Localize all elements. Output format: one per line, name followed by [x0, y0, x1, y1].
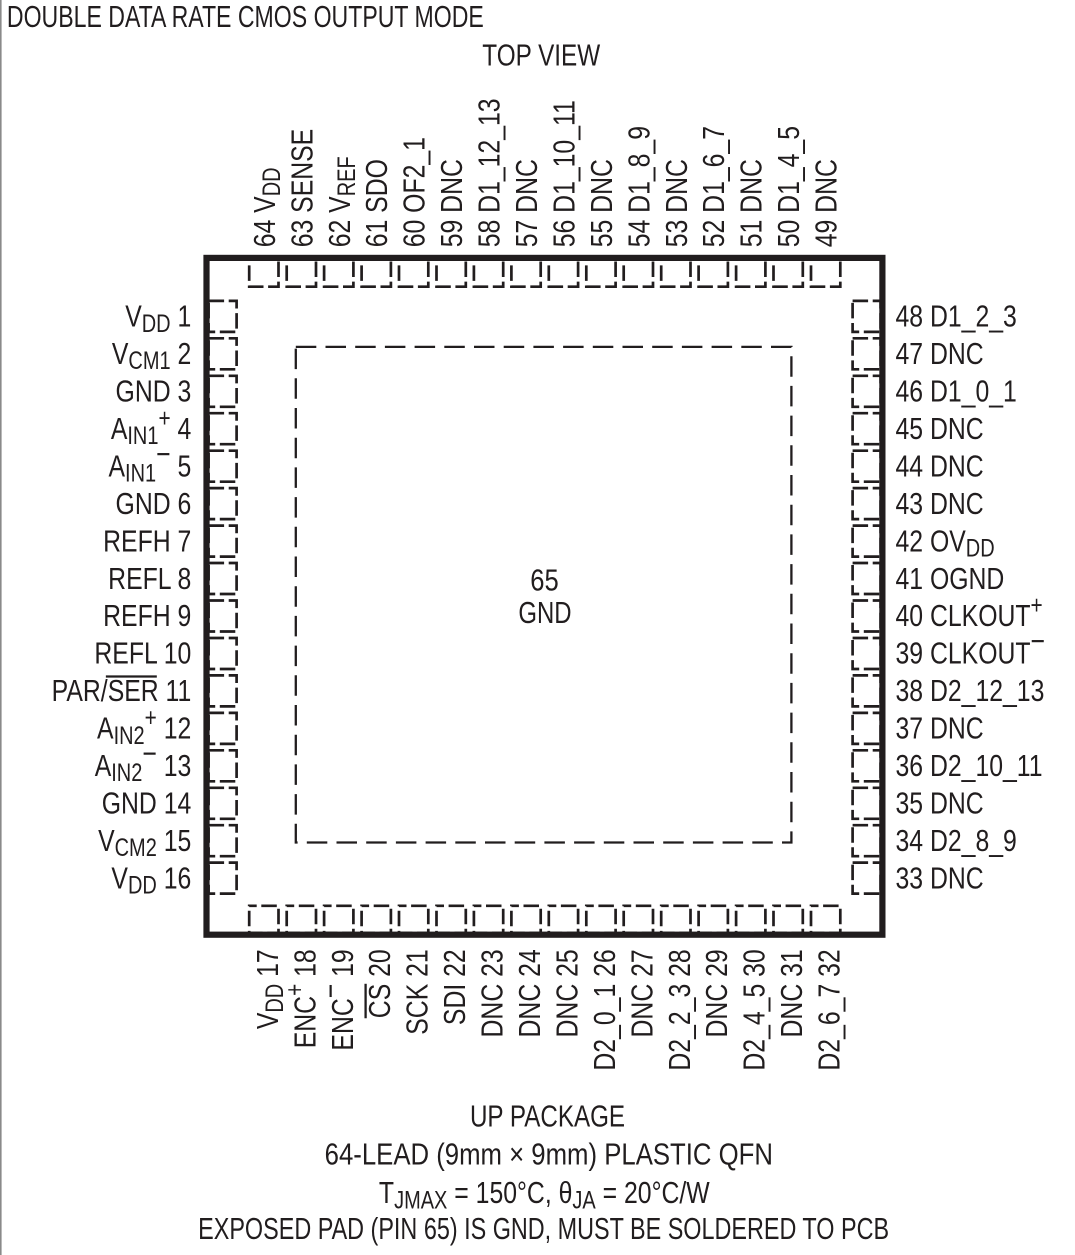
svg-text:PAR/SER 11: PAR/SER 11 [52, 673, 192, 707]
svg-text:SCK 21: SCK 21 [400, 949, 434, 1034]
svg-text:EXPOSED PAD (PIN 65) IS GND, M: EXPOSED PAD (PIN 65) IS GND, MUST BE SOL… [198, 1211, 889, 1246]
svg-text:57 DNC: 57 DNC [509, 159, 543, 247]
svg-text:GND 14: GND 14 [102, 786, 192, 820]
svg-text:63 SENSE: 63 SENSE [285, 129, 319, 248]
svg-text:D2_0_1 26: D2_0_1 26 [587, 949, 621, 1070]
svg-text:55 DNC: 55 DNC [584, 159, 618, 247]
svg-text:48 D1_2_3: 48 D1_2_3 [896, 299, 1017, 333]
svg-text:TOP VIEW: TOP VIEW [482, 38, 601, 73]
svg-text:51 DNC: 51 DNC [734, 159, 768, 247]
svg-text:60 OF2_1: 60 OF2_1 [397, 137, 431, 247]
svg-text:59 DNC: 59 DNC [434, 159, 468, 247]
svg-text:DNC 27: DNC 27 [625, 949, 659, 1037]
svg-text:33 DNC: 33 DNC [896, 861, 984, 895]
svg-text:54 D1_8_9: 54 D1_8_9 [622, 126, 656, 247]
svg-text:D2_4_5 30: D2_4_5 30 [737, 949, 771, 1070]
svg-text:GND 3: GND 3 [116, 374, 192, 408]
svg-text:DNC 25: DNC 25 [550, 949, 584, 1037]
svg-text:50 D1_4_5: 50 D1_4_5 [772, 126, 806, 247]
svg-text:52 D1_6_7: 52 D1_6_7 [697, 126, 731, 247]
svg-text:37 DNC: 37 DNC [896, 711, 984, 745]
svg-text:46 D1_0_1: 46 D1_0_1 [896, 374, 1017, 408]
svg-text:53 DNC: 53 DNC [659, 159, 693, 247]
svg-text:43 DNC: 43 DNC [896, 486, 984, 520]
svg-text:D2_2_3 28: D2_2_3 28 [662, 949, 696, 1070]
svg-text:DNC 23: DNC 23 [475, 949, 509, 1037]
svg-text:REFH 7: REFH 7 [103, 524, 191, 558]
svg-text:45 DNC: 45 DNC [896, 411, 984, 445]
svg-text:SDI 22: SDI 22 [437, 949, 471, 1025]
svg-text:58 D1_12_13: 58 D1_12_13 [472, 98, 506, 247]
svg-text:41 OGND: 41 OGND [896, 561, 1005, 595]
svg-text:36 D2_10_11: 36 D2_10_11 [896, 748, 1043, 782]
svg-text:DNC 29: DNC 29 [700, 949, 734, 1037]
svg-text:35 DNC: 35 DNC [896, 786, 984, 820]
svg-text:DNC 24: DNC 24 [512, 949, 546, 1037]
svg-text:64-LEAD (9mm × 9mm) PLASTIC QF: 64-LEAD (9mm × 9mm) PLASTIC QFN [325, 1137, 773, 1172]
svg-text:REFH 9: REFH 9 [103, 599, 191, 633]
svg-text:DOUBLE DATA RATE CMOS OUTPUT M: DOUBLE DATA RATE CMOS OUTPUT MODE [7, 0, 484, 34]
svg-text:56 D1_10_11: 56 D1_10_11 [547, 100, 581, 247]
svg-text:D2_6_7 32: D2_6_7 32 [812, 949, 846, 1070]
svg-text:DNC 31: DNC 31 [775, 949, 809, 1037]
svg-text:CS 20: CS 20 [363, 949, 397, 1018]
svg-text:38 D2_12_13: 38 D2_12_13 [896, 673, 1045, 707]
svg-text:61 SDO: 61 SDO [360, 159, 394, 247]
svg-text:47 DNC: 47 DNC [896, 336, 984, 370]
svg-text:65: 65 [530, 563, 558, 598]
svg-text:34 D2_8_9: 34 D2_8_9 [896, 823, 1017, 857]
svg-text:REFL 8: REFL 8 [108, 561, 191, 595]
svg-text:GND: GND [518, 595, 571, 630]
svg-text:GND 6: GND 6 [116, 486, 192, 520]
svg-text:49 DNC: 49 DNC [809, 159, 843, 247]
svg-text:UP PACKAGE: UP PACKAGE [470, 1099, 625, 1134]
svg-text:REFL 10: REFL 10 [94, 636, 191, 670]
svg-text:44 DNC: 44 DNC [896, 449, 984, 483]
